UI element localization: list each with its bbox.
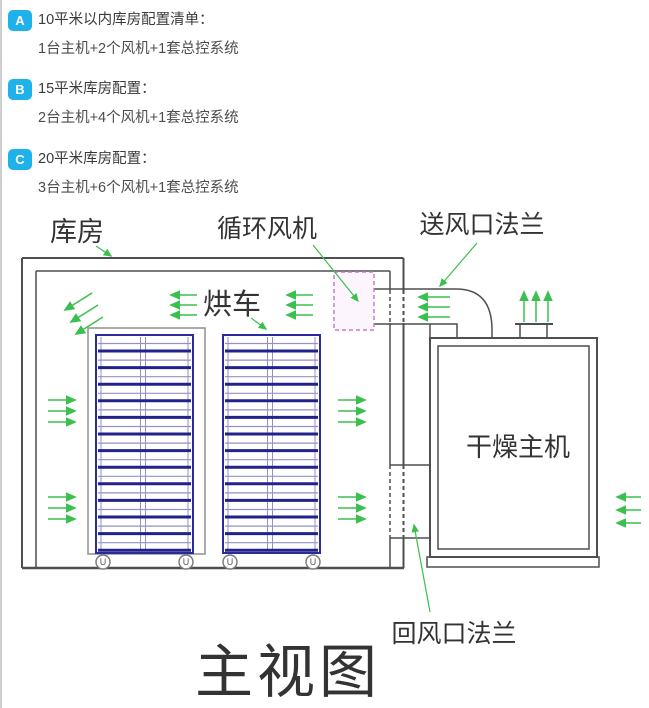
airflow-arrows-cart-right — [287, 295, 313, 315]
return-air-duct — [390, 465, 430, 538]
label-leaders — [96, 243, 477, 612]
label-return-air-flange: 回风口法兰 — [391, 620, 516, 648]
label-drying-host: 干燥主机 — [466, 433, 570, 462]
airflow-arrows-cart-left — [171, 295, 197, 315]
host-base — [427, 557, 599, 567]
circulation-fan-box — [334, 272, 374, 330]
caster-wheel-glyph: U — [100, 557, 107, 567]
front-view-diagram: U U U U — [0, 0, 649, 708]
caster-wheel-glyph: U — [310, 557, 317, 567]
label-circulation-fan: 循环风机 — [217, 215, 317, 243]
caster-wheel-glyph: U — [183, 557, 190, 567]
label-warehouse: 库房 — [50, 217, 104, 247]
airflow-arrows-left-lower — [48, 497, 75, 519]
caster-wheel-glyph: U — [227, 557, 234, 567]
label-drying-cart: 烘车 — [203, 288, 261, 321]
cart-shelves — [98, 337, 318, 551]
airflow-arrows-vent-up — [524, 292, 548, 322]
airflow-arrows-host-right — [617, 497, 641, 523]
airflow-arrows-left-upper — [48, 400, 75, 422]
warehouse-leader — [96, 246, 111, 256]
label-supply-air-flange: 送风口法兰 — [419, 211, 544, 239]
airflow-arrows-right-lower — [338, 497, 365, 519]
cart-frame — [88, 328, 205, 554]
supply-flange-leader — [440, 243, 477, 286]
airflow-arrows-supply-duct — [419, 297, 450, 317]
airflow-arrows-right-upper — [338, 400, 365, 422]
diagram-title: 主视图 — [195, 640, 381, 705]
